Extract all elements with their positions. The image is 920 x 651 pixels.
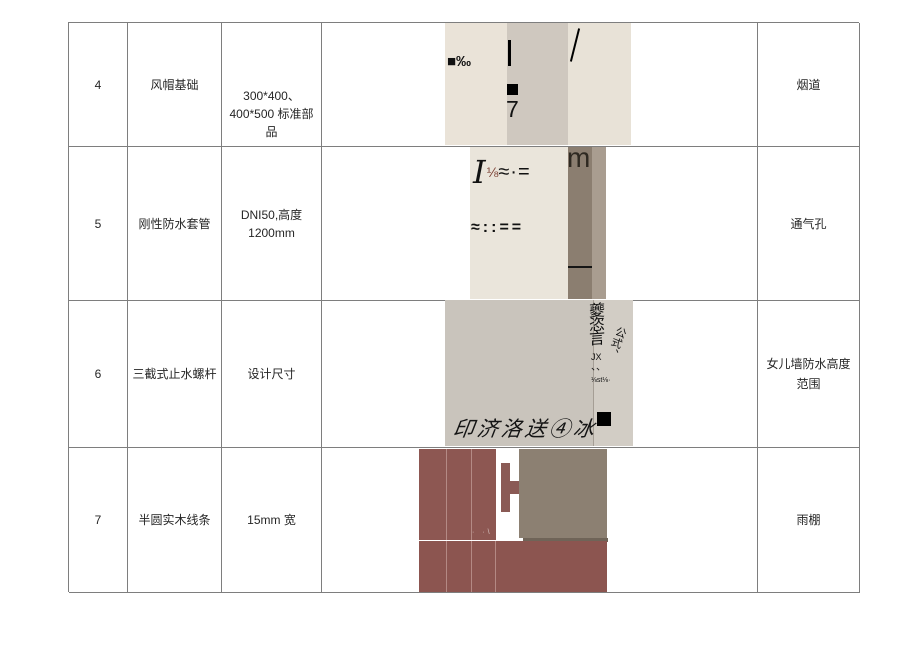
vertical-calligraphy: 夔恣言 [587, 301, 603, 344]
annotation-line-1: I ⅛ ≈·= [473, 156, 531, 188]
document-page: 4 风帽基础 300*400、 400*500 标准部品 烟道 5 刚性防水套管… [0, 0, 920, 651]
canopy-post [501, 463, 510, 512]
row4-name-cell: 风帽基础 [128, 23, 222, 147]
row7-name-cell: 半圆实木线条 [128, 448, 222, 593]
approx-marks: ≈·= [498, 162, 530, 182]
remark-text: 烟道 [796, 75, 820, 95]
spec-line-1: 设计尺寸 [247, 365, 295, 383]
row-number: 5 [95, 215, 102, 233]
italic-I-mark: I [473, 156, 486, 188]
light-specks: · ·\ [472, 529, 493, 536]
component-name: 风帽基础 [150, 76, 198, 94]
remark-text: 女儿墙防水高度范围 [761, 354, 856, 394]
spec-line-2: 400*500 标准部品 [225, 105, 318, 141]
m-mark: m [567, 144, 590, 172]
permille-mark: ■‰ [447, 54, 471, 69]
calligraphy-text: 印济洛送④冰 [452, 419, 599, 440]
canopy-photo: · ·\ [419, 449, 608, 592]
spec-line-2: 1200mm [248, 224, 295, 242]
spec-line-1: 15mm 宽 [247, 511, 296, 529]
row-number: 6 [95, 365, 102, 383]
digit-mark: 7 [506, 98, 519, 121]
horizontal-line-mark [568, 266, 592, 268]
tiny-text: ⅛st⅛· [591, 377, 610, 384]
fraction-mark: ⅛ [487, 165, 499, 179]
black-square-mark [507, 84, 518, 95]
remark-text: 雨棚 [796, 510, 820, 530]
panel-seam [446, 449, 447, 540]
row4-remark-cell: 烟道 [758, 23, 860, 147]
row4-number-cell: 4 [69, 23, 128, 147]
row6-remark-cell: 女儿墙防水高度范围 [758, 301, 860, 448]
row7-remark-cell: 雨棚 [758, 448, 860, 593]
vent-photo: m I ⅛ ≈·= ≈::== [470, 147, 606, 299]
black-square-mark [597, 412, 611, 426]
parapet-photo: 印济洛送④冰 夔恣言 公式、 JX 、、 ⅛st⅛· [445, 300, 633, 446]
canopy-upper-maroon-block [419, 449, 496, 540]
spec-line-1: DNI50,高度 [241, 206, 302, 224]
canopy-taupe-block [519, 449, 607, 538]
row6-number-cell: 6 [69, 301, 128, 448]
component-name: 刚性防水套管 [138, 215, 210, 233]
chimney-photo: ■‰ 7 [445, 23, 631, 145]
panel-seam [471, 449, 472, 540]
annotation-line-2: ≈::== [471, 220, 524, 236]
row5-remark-cell: 通气孔 [758, 147, 860, 301]
jx-mark: JX [591, 353, 602, 362]
panel-seam [495, 541, 496, 592]
panel-seam [471, 541, 472, 592]
panel-seam [446, 541, 447, 592]
row4-spec-cell: 300*400、 400*500 标准部品 [222, 23, 322, 147]
chimney-right-band [568, 23, 631, 145]
row7-number-cell: 7 [69, 448, 128, 593]
spec-line-1: 300*400、 [243, 87, 300, 105]
vent-light-strip [592, 147, 606, 299]
component-name: 半圆实木线条 [138, 511, 210, 529]
vertical-bar-mark [508, 40, 511, 66]
row5-name-cell: 刚性防水套管 [128, 147, 222, 301]
remark-text: 通气孔 [790, 214, 826, 234]
comma-marks: 、、 [591, 363, 606, 373]
row7-spec-cell: 15mm 宽 [222, 448, 322, 593]
row6-name-cell: 三截式止水螺杆 [128, 301, 222, 448]
canopy-lower-maroon-block [419, 541, 607, 592]
row-number: 4 [95, 76, 102, 94]
row5-number-cell: 5 [69, 147, 128, 301]
chimney-left-band [445, 23, 507, 145]
component-name: 三截式止水螺杆 [132, 365, 216, 383]
row5-spec-cell: DNI50,高度 1200mm [222, 147, 322, 301]
row6-spec-cell: 设计尺寸 [222, 301, 322, 448]
row-number: 7 [95, 511, 102, 529]
